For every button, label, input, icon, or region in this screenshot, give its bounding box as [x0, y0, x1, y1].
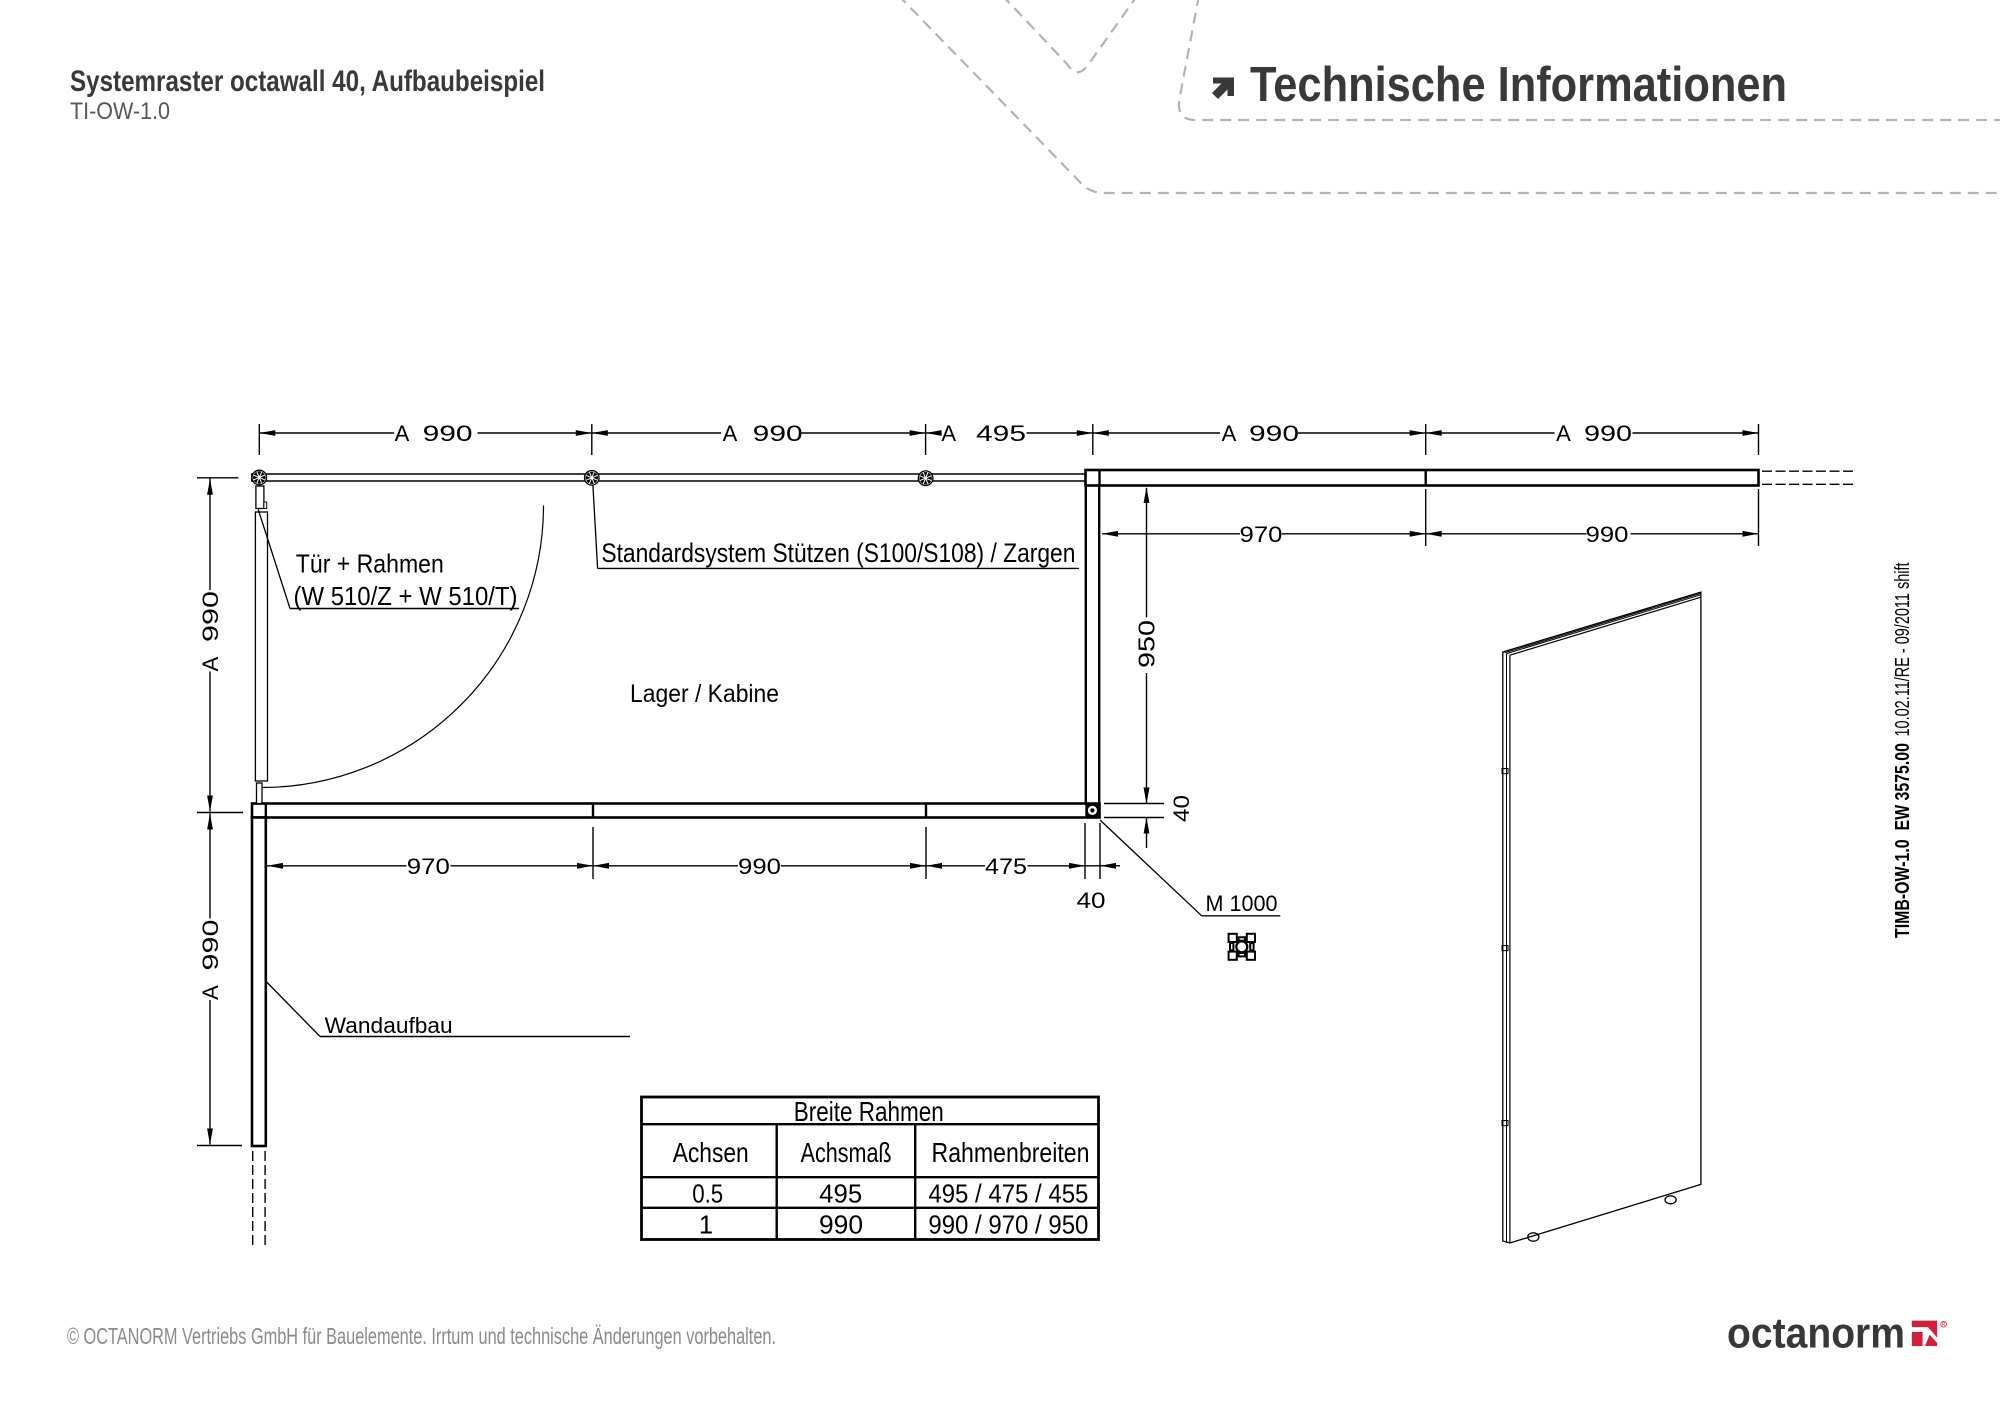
svg-text:octanorm: octanorm [1727, 1309, 1905, 1357]
svg-text:A: A [198, 985, 223, 1000]
svg-text:(W 510/Z + W 510/T): (W 510/Z + W 510/T) [294, 581, 518, 611]
svg-text:Technische Informationen: Technische Informationen [1250, 57, 1787, 112]
svg-text:970: 970 [1240, 522, 1283, 547]
svg-text:950: 950 [1134, 620, 1160, 668]
svg-text:990: 990 [423, 421, 473, 446]
svg-text:A: A [198, 656, 223, 671]
svg-text:Achsmaß: Achsmaß [801, 1137, 892, 1168]
svg-text:A: A [1556, 421, 1571, 446]
svg-text:990: 990 [819, 1212, 863, 1240]
svg-text:A: A [1222, 421, 1237, 446]
svg-text:495 / 475 / 455: 495 / 475 / 455 [928, 1181, 1088, 1209]
svg-text:990: 990 [753, 421, 803, 446]
svg-text:Standardsystem Stützen (S100/S: Standardsystem Stützen (S100/S108) / Zar… [601, 538, 1075, 568]
svg-text:Achsen: Achsen [673, 1137, 749, 1168]
svg-text:0.5: 0.5 [692, 1181, 723, 1209]
svg-text:Tür + Rahmen: Tür + Rahmen [296, 549, 444, 579]
svg-text:990: 990 [198, 920, 223, 971]
svg-text:TI-OW-1.0: TI-OW-1.0 [70, 98, 170, 125]
svg-text:Wandaufbau: Wandaufbau [325, 1013, 453, 1038]
svg-text:990: 990 [1584, 421, 1632, 446]
svg-text:Lager / Kabine: Lager / Kabine [630, 680, 779, 708]
svg-text:495: 495 [819, 1181, 862, 1209]
svg-text:990: 990 [1249, 421, 1299, 446]
svg-text:40: 40 [1169, 795, 1194, 822]
svg-text:495: 495 [976, 421, 1026, 446]
svg-text:10.02.11/RE - 09/2011 shift: 10.02.11/RE - 09/2011 shift [1892, 562, 1914, 736]
svg-text:970: 970 [407, 854, 450, 879]
svg-text:R: R [1942, 1322, 1946, 1328]
svg-text:Breite Rahmen: Breite Rahmen [794, 1096, 944, 1127]
svg-text:40: 40 [1077, 888, 1106, 913]
svg-text:475: 475 [985, 854, 1027, 879]
svg-text:TIMB-OW-1.0 EW 3575.00: TIMB-OW-1.0 EW 3575.00 [1892, 743, 1914, 938]
svg-text:A: A [941, 421, 956, 446]
svg-text:990 / 970 / 950: 990 / 970 / 950 [928, 1212, 1088, 1240]
svg-text:990: 990 [1586, 522, 1629, 547]
svg-text:A: A [723, 421, 738, 446]
svg-text:Rahmenbreiten: Rahmenbreiten [932, 1137, 1090, 1168]
svg-text:990: 990 [198, 591, 223, 642]
svg-text:Systemraster octawall 40, Aufb: Systemraster octawall 40, Aufbaubeispiel [70, 65, 545, 98]
svg-text:A: A [395, 421, 410, 446]
svg-text:© OCTANORM Vertriebs GmbH für: © OCTANORM Vertriebs GmbH für Bauelement… [67, 1323, 776, 1349]
svg-text:990: 990 [738, 854, 781, 879]
svg-text:1: 1 [699, 1212, 713, 1240]
svg-text:M 1000: M 1000 [1206, 891, 1278, 916]
